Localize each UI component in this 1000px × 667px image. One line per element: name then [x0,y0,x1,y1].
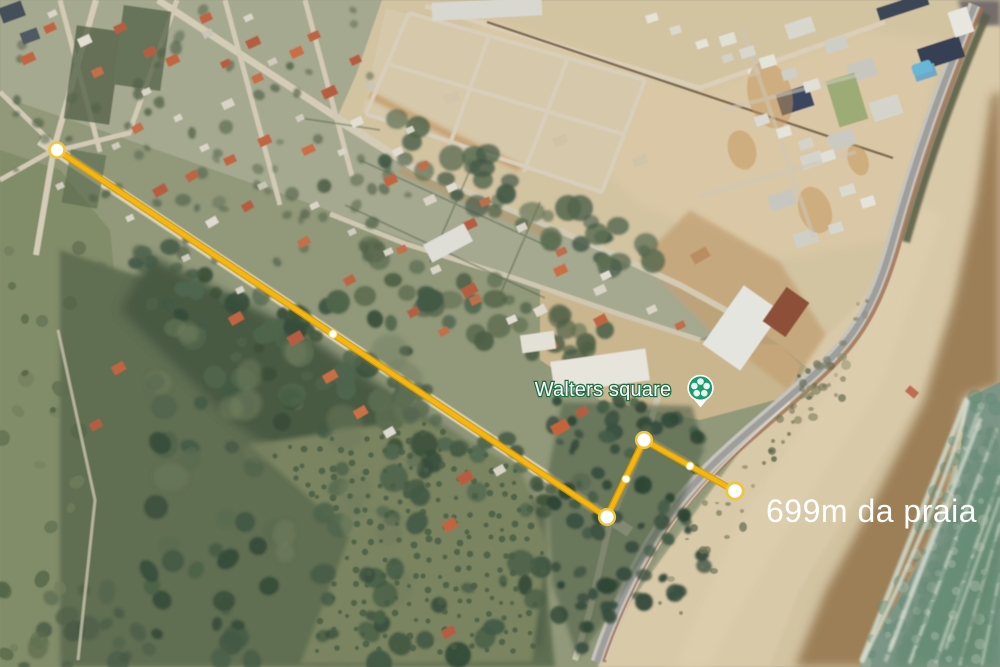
svg-text:699m da praia: 699m da praia [766,493,977,529]
svg-text:Walters square: Walters square [535,379,672,401]
